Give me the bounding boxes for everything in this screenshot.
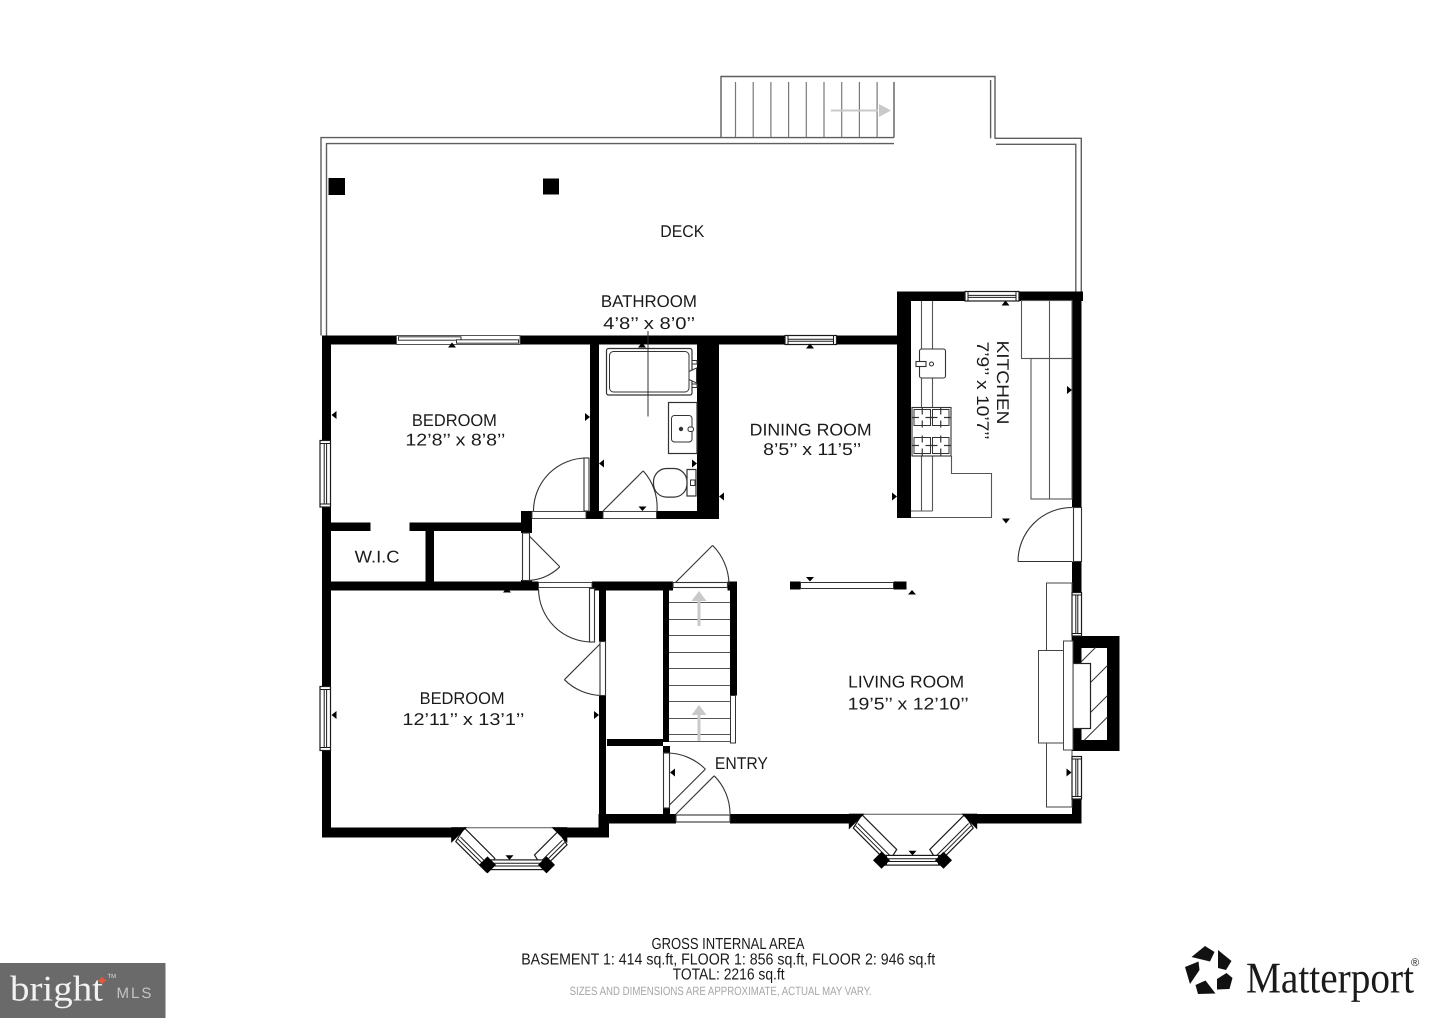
svg-text:7’9’’ x 10’7’’: 7’9’’ x 10’7’’ bbox=[973, 342, 992, 440]
svg-text:BEDROOM: BEDROOM bbox=[420, 689, 505, 708]
svg-text:LIVING ROOM: LIVING ROOM bbox=[848, 673, 964, 692]
svg-text:DECK: DECK bbox=[660, 222, 705, 241]
svg-text:KITCHEN: KITCHEN bbox=[993, 341, 1012, 425]
svg-text:W.I.C: W.I.C bbox=[355, 547, 400, 566]
svg-text:MLS: MLS bbox=[117, 985, 154, 1002]
svg-text:Matterport: Matterport bbox=[1246, 954, 1414, 1003]
svg-text:®: ® bbox=[1411, 957, 1419, 969]
svg-text:12’11’’ x 13’1’’: 12’11’’ x 13’1’’ bbox=[402, 710, 524, 729]
svg-text:bright: bright bbox=[10, 969, 103, 1009]
svg-text:BEDROOM: BEDROOM bbox=[412, 411, 497, 430]
svg-text:DINING ROOM: DINING ROOM bbox=[750, 421, 872, 440]
svg-text:BATHROOM: BATHROOM bbox=[601, 292, 697, 311]
svg-text:19’5’’ x 12’10’’: 19’5’’ x 12’10’’ bbox=[848, 695, 969, 714]
svg-text:TM: TM bbox=[108, 973, 117, 980]
svg-text:SIZES AND DIMENSIONS ARE APPRO: SIZES AND DIMENSIONS ARE APPROXIMATE, AC… bbox=[570, 984, 872, 998]
svg-text:ENTRY: ENTRY bbox=[715, 754, 768, 773]
svg-text:12’8’’ x 8’8’’: 12’8’’ x 8’8’’ bbox=[405, 431, 505, 450]
svg-text:8’5’’ x 11’5’’: 8’5’’ x 11’5’’ bbox=[763, 440, 861, 459]
svg-text:TOTAL: 2216 sq.ft: TOTAL: 2216 sq.ft bbox=[673, 966, 785, 983]
svg-text:GROSS INTERNAL AREA: GROSS INTERNAL AREA bbox=[652, 936, 805, 953]
svg-text:4’8’’ x 8’0’’: 4’8’’ x 8’0’’ bbox=[603, 314, 695, 333]
